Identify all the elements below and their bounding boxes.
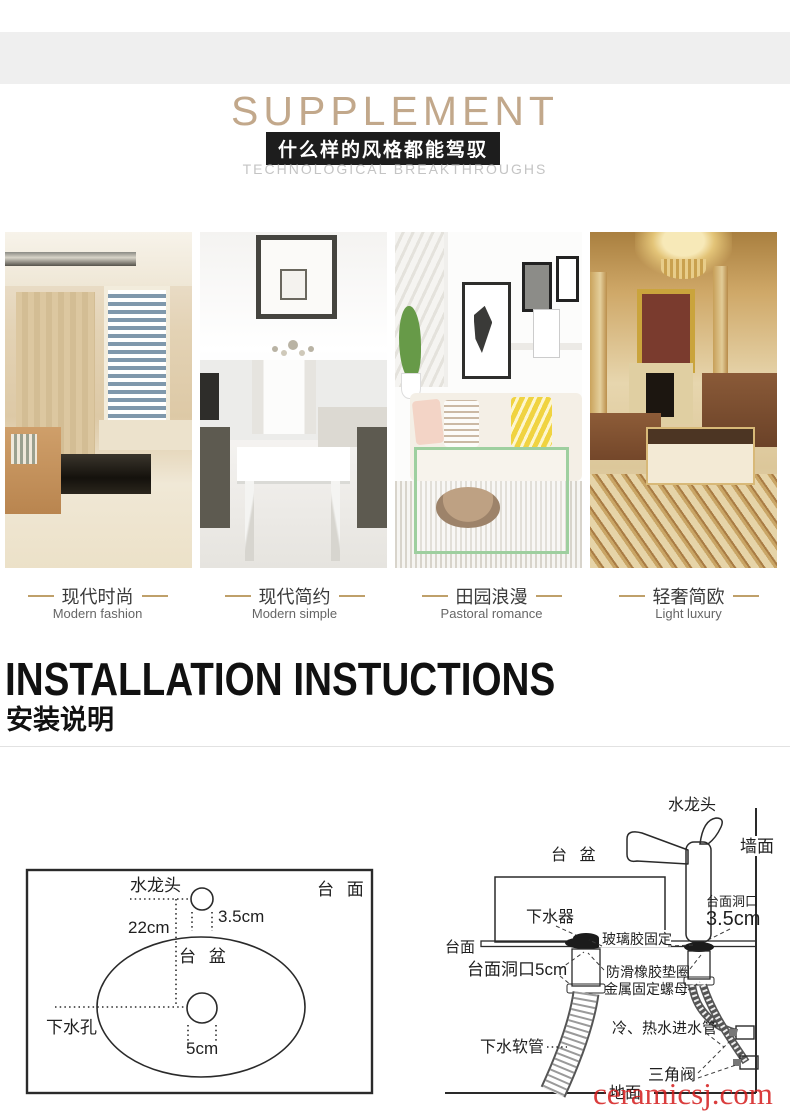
- drain-fitting-label: 下水器: [526, 908, 574, 926]
- drain-hole-label: 台面洞口5cm: [467, 960, 567, 979]
- picture-frame-shape: [556, 256, 579, 302]
- carpet-shape: [590, 474, 777, 568]
- photo-modern-simple: [200, 232, 387, 568]
- gilt-frame-shape: [637, 289, 696, 373]
- label-dash: [225, 595, 251, 597]
- label-dash: [339, 595, 365, 597]
- yellow-pillow-shape: [511, 397, 552, 447]
- chair-left-shape: [200, 427, 230, 528]
- blinds-window-shape: [104, 286, 170, 428]
- label-dash: [619, 595, 645, 597]
- style-label-en: Modern fashion: [0, 606, 195, 621]
- basin-label: 台 盆: [551, 846, 599, 864]
- supplement-title: SUPPLEMENT: [0, 88, 790, 135]
- diagram-top-view: 台 面 水龙头 3.5cm 22cm 台 盆 下水孔 5cm: [27, 870, 372, 1093]
- curtain-shape: [252, 360, 316, 434]
- photo-light-luxury: [590, 232, 777, 568]
- label-dash: [28, 595, 54, 597]
- metal-nut-label: 金属固定螺母: [604, 981, 688, 997]
- picture-frame-shape: [533, 309, 559, 358]
- coffee-table-shape: [61, 454, 151, 494]
- window-bench-shape: [99, 420, 193, 450]
- tech-subtitle: TECHNOLOGICAL BREAKTHROUGHS: [0, 161, 790, 177]
- basin-label: 台 盆: [179, 947, 230, 966]
- faucet-handle-shape: [700, 818, 722, 844]
- table-leg-shape: [331, 481, 340, 562]
- pendant-shape: [280, 269, 306, 300]
- faucet-label: 水龙头: [130, 876, 181, 895]
- style-label-en: Light luxury: [591, 606, 786, 621]
- photo-pastoral-romance: [395, 232, 582, 568]
- inlet-pipes-label: 冷、热水进水管: [612, 1020, 717, 1037]
- chandelier-shape: [661, 259, 706, 279]
- countertop-outline: [27, 870, 372, 1093]
- wall-label: 墙面: [740, 837, 774, 856]
- drain-hose-label: 下水软管: [480, 1038, 544, 1056]
- table-leg-shape: [245, 481, 254, 562]
- tv-shape: [200, 373, 219, 420]
- valve-handle-shape: [729, 1029, 737, 1036]
- style-label-en: Pastoral romance: [394, 606, 589, 621]
- drain-threaded-pipe: [572, 949, 600, 986]
- chandelier-shape: [288, 340, 298, 350]
- label-dash: [733, 595, 759, 597]
- faucet-threaded-pipe: [688, 951, 710, 979]
- leader-dashed-line: [704, 929, 730, 942]
- picture-frame-shape: [522, 262, 552, 312]
- top-gray-band: [0, 32, 790, 84]
- site-watermark: ceramicsj.com: [593, 1076, 773, 1112]
- ceiling-rail-shape: [5, 252, 136, 265]
- drain-hole-label: 下水孔: [46, 1018, 97, 1037]
- label-dash: [422, 595, 448, 597]
- hole-dim: 3.5cm: [706, 908, 760, 930]
- faucet-hole-dim: 3.5cm: [218, 907, 264, 926]
- faucet-label: 水龙头: [668, 796, 716, 814]
- photo-modern-fashion: [5, 232, 192, 568]
- pink-pillow-shape: [411, 399, 443, 445]
- drain-hole: [187, 993, 217, 1023]
- faucet-hole: [191, 888, 213, 910]
- chair-right-shape: [357, 427, 387, 528]
- valve-handle-shape: [733, 1059, 741, 1066]
- drain-hole-dim: 5cm: [186, 1039, 218, 1058]
- silicone-label: 玻璃胶固定: [602, 931, 672, 947]
- label-dash: [536, 595, 562, 597]
- faucet-to-drain-dim: 22cm: [128, 918, 170, 937]
- installation-title-cn: 安装说明: [6, 698, 114, 737]
- pattern-pillow-shape: [444, 400, 480, 447]
- faucet-spout-shape: [627, 832, 688, 864]
- rubber-washer-label: 防滑橡胶垫圈: [606, 964, 690, 980]
- fireplace-opening-shape: [646, 373, 674, 417]
- dining-table-shape: [237, 447, 349, 484]
- diagram-side-view: 水龙头 台 盆 下水器 台面: [445, 796, 777, 1102]
- glass-table-shape: [414, 447, 570, 554]
- section-divider: [0, 746, 790, 747]
- installation-diagrams: 台 面 水龙头 3.5cm 22cm 台 盆 下水孔 5cm 水龙头: [0, 770, 790, 1120]
- countertop-label: 台 面: [317, 880, 368, 899]
- angle-valve-shape: [736, 1026, 754, 1039]
- leader-dashed-line: [690, 955, 701, 969]
- coffee-table-shape: [646, 427, 755, 485]
- pillow-shape: [11, 434, 37, 464]
- hole-label: 台面洞口: [706, 894, 758, 909]
- style-label-en: Modern simple: [197, 606, 392, 621]
- leader-dashed-line: [588, 953, 604, 970]
- label-dash: [142, 595, 168, 597]
- product-detail-page: SUPPLEMENT 什么样的风格都能驾驭 TECHNOLOGICAL BREA…: [0, 0, 790, 1120]
- countertop-label: 台面: [445, 939, 475, 956]
